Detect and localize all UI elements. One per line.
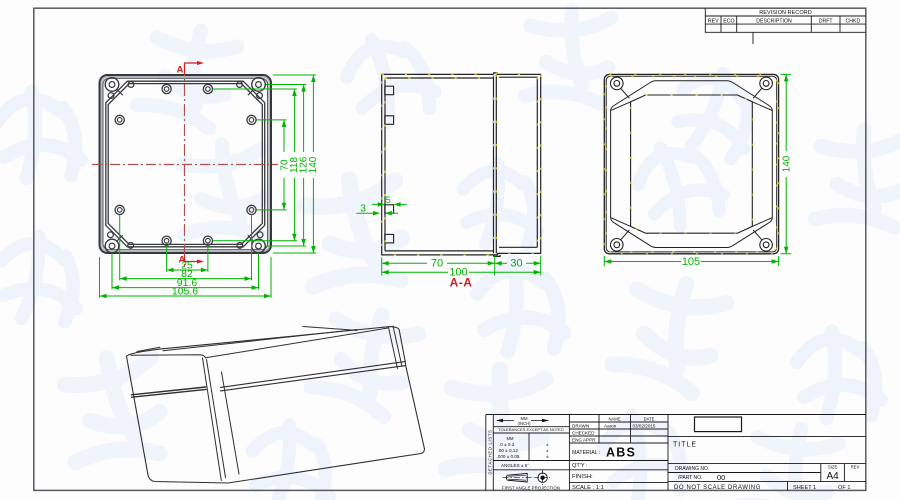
- svg-text:TITLE: TITLE: [673, 442, 697, 449]
- svg-text:105: 105: [682, 256, 700, 268]
- svg-text:Aaron: Aaron: [604, 424, 617, 429]
- svg-text:ECO: ECO: [723, 18, 734, 24]
- svg-text:MATERIAL :: MATERIAL :: [572, 450, 600, 456]
- svg-text:5: 5: [386, 195, 391, 205]
- svg-text:70: 70: [431, 258, 443, 270]
- svg-text:DETACHED LISTS: DETACHED LISTS: [488, 429, 493, 474]
- svg-text:ENG APPR: ENG APPR: [572, 438, 596, 443]
- svg-text:.00 ± 0.12: .00 ± 0.12: [498, 448, 519, 453]
- svg-text:(INCH): (INCH): [517, 421, 531, 426]
- svg-text:TOLERANCES EXCEPT AS NOTED: TOLERANCES EXCEPT AS NOTED: [498, 427, 564, 432]
- svg-text:CHECKED: CHECKED: [572, 431, 595, 436]
- svg-text:FIRST ANGLE PROJECTION: FIRST ANGLE PROJECTION: [502, 485, 560, 490]
- svg-text:REV: REV: [851, 464, 860, 469]
- svg-text:ABS: ABS: [606, 446, 636, 460]
- svg-text:/PART NO.: /PART NO.: [678, 475, 702, 481]
- svg-text:A-A: A-A: [450, 276, 473, 290]
- svg-text:.000 ± 0.05: .000 ± 0.05: [497, 454, 520, 459]
- svg-text:CHKD: CHKD: [846, 18, 861, 24]
- svg-text:DRAWING NO.: DRAWING NO.: [675, 466, 709, 472]
- svg-text:105.6: 105.6: [172, 285, 198, 297]
- svg-text:FINISH:: FINISH:: [572, 474, 593, 480]
- svg-text:SHEET 1: SHEET 1: [793, 485, 816, 491]
- svg-text:DRFT: DRFT: [819, 18, 834, 24]
- svg-text:00: 00: [717, 473, 725, 482]
- svg-text:30: 30: [510, 258, 522, 270]
- svg-text:DESCRIPTION: DESCRIPTION: [756, 18, 792, 24]
- svg-text:03/02/2015: 03/02/2015: [633, 424, 656, 429]
- svg-text:A: A: [177, 65, 184, 76]
- svg-text:REVISION RECORD: REVISION RECORD: [759, 10, 812, 16]
- svg-text:DATE: DATE: [644, 416, 655, 421]
- svg-text:A4: A4: [826, 471, 839, 482]
- svg-text:REV: REV: [708, 18, 719, 24]
- svg-text:MM: MM: [507, 436, 514, 441]
- svg-text:QT'Y :: QT'Y :: [572, 463, 588, 469]
- svg-text:ANGLES ± 5°: ANGLES ± 5°: [501, 463, 529, 468]
- svg-text:DRAWN: DRAWN: [572, 424, 589, 429]
- svg-text:.0 ± 0.3: .0 ± 0.3: [499, 442, 515, 447]
- svg-text:140: 140: [782, 155, 793, 172]
- svg-text:SCALE : 1:1: SCALE : 1:1: [572, 485, 604, 491]
- svg-text:SIZE: SIZE: [828, 464, 838, 469]
- svg-text:OF 1: OF 1: [838, 485, 850, 491]
- svg-text:DO NOT SCALE DRAWING: DO NOT SCALE DRAWING: [674, 485, 761, 491]
- svg-text:140: 140: [308, 156, 319, 173]
- svg-text:3: 3: [360, 203, 366, 215]
- svg-text:NAME: NAME: [608, 416, 620, 421]
